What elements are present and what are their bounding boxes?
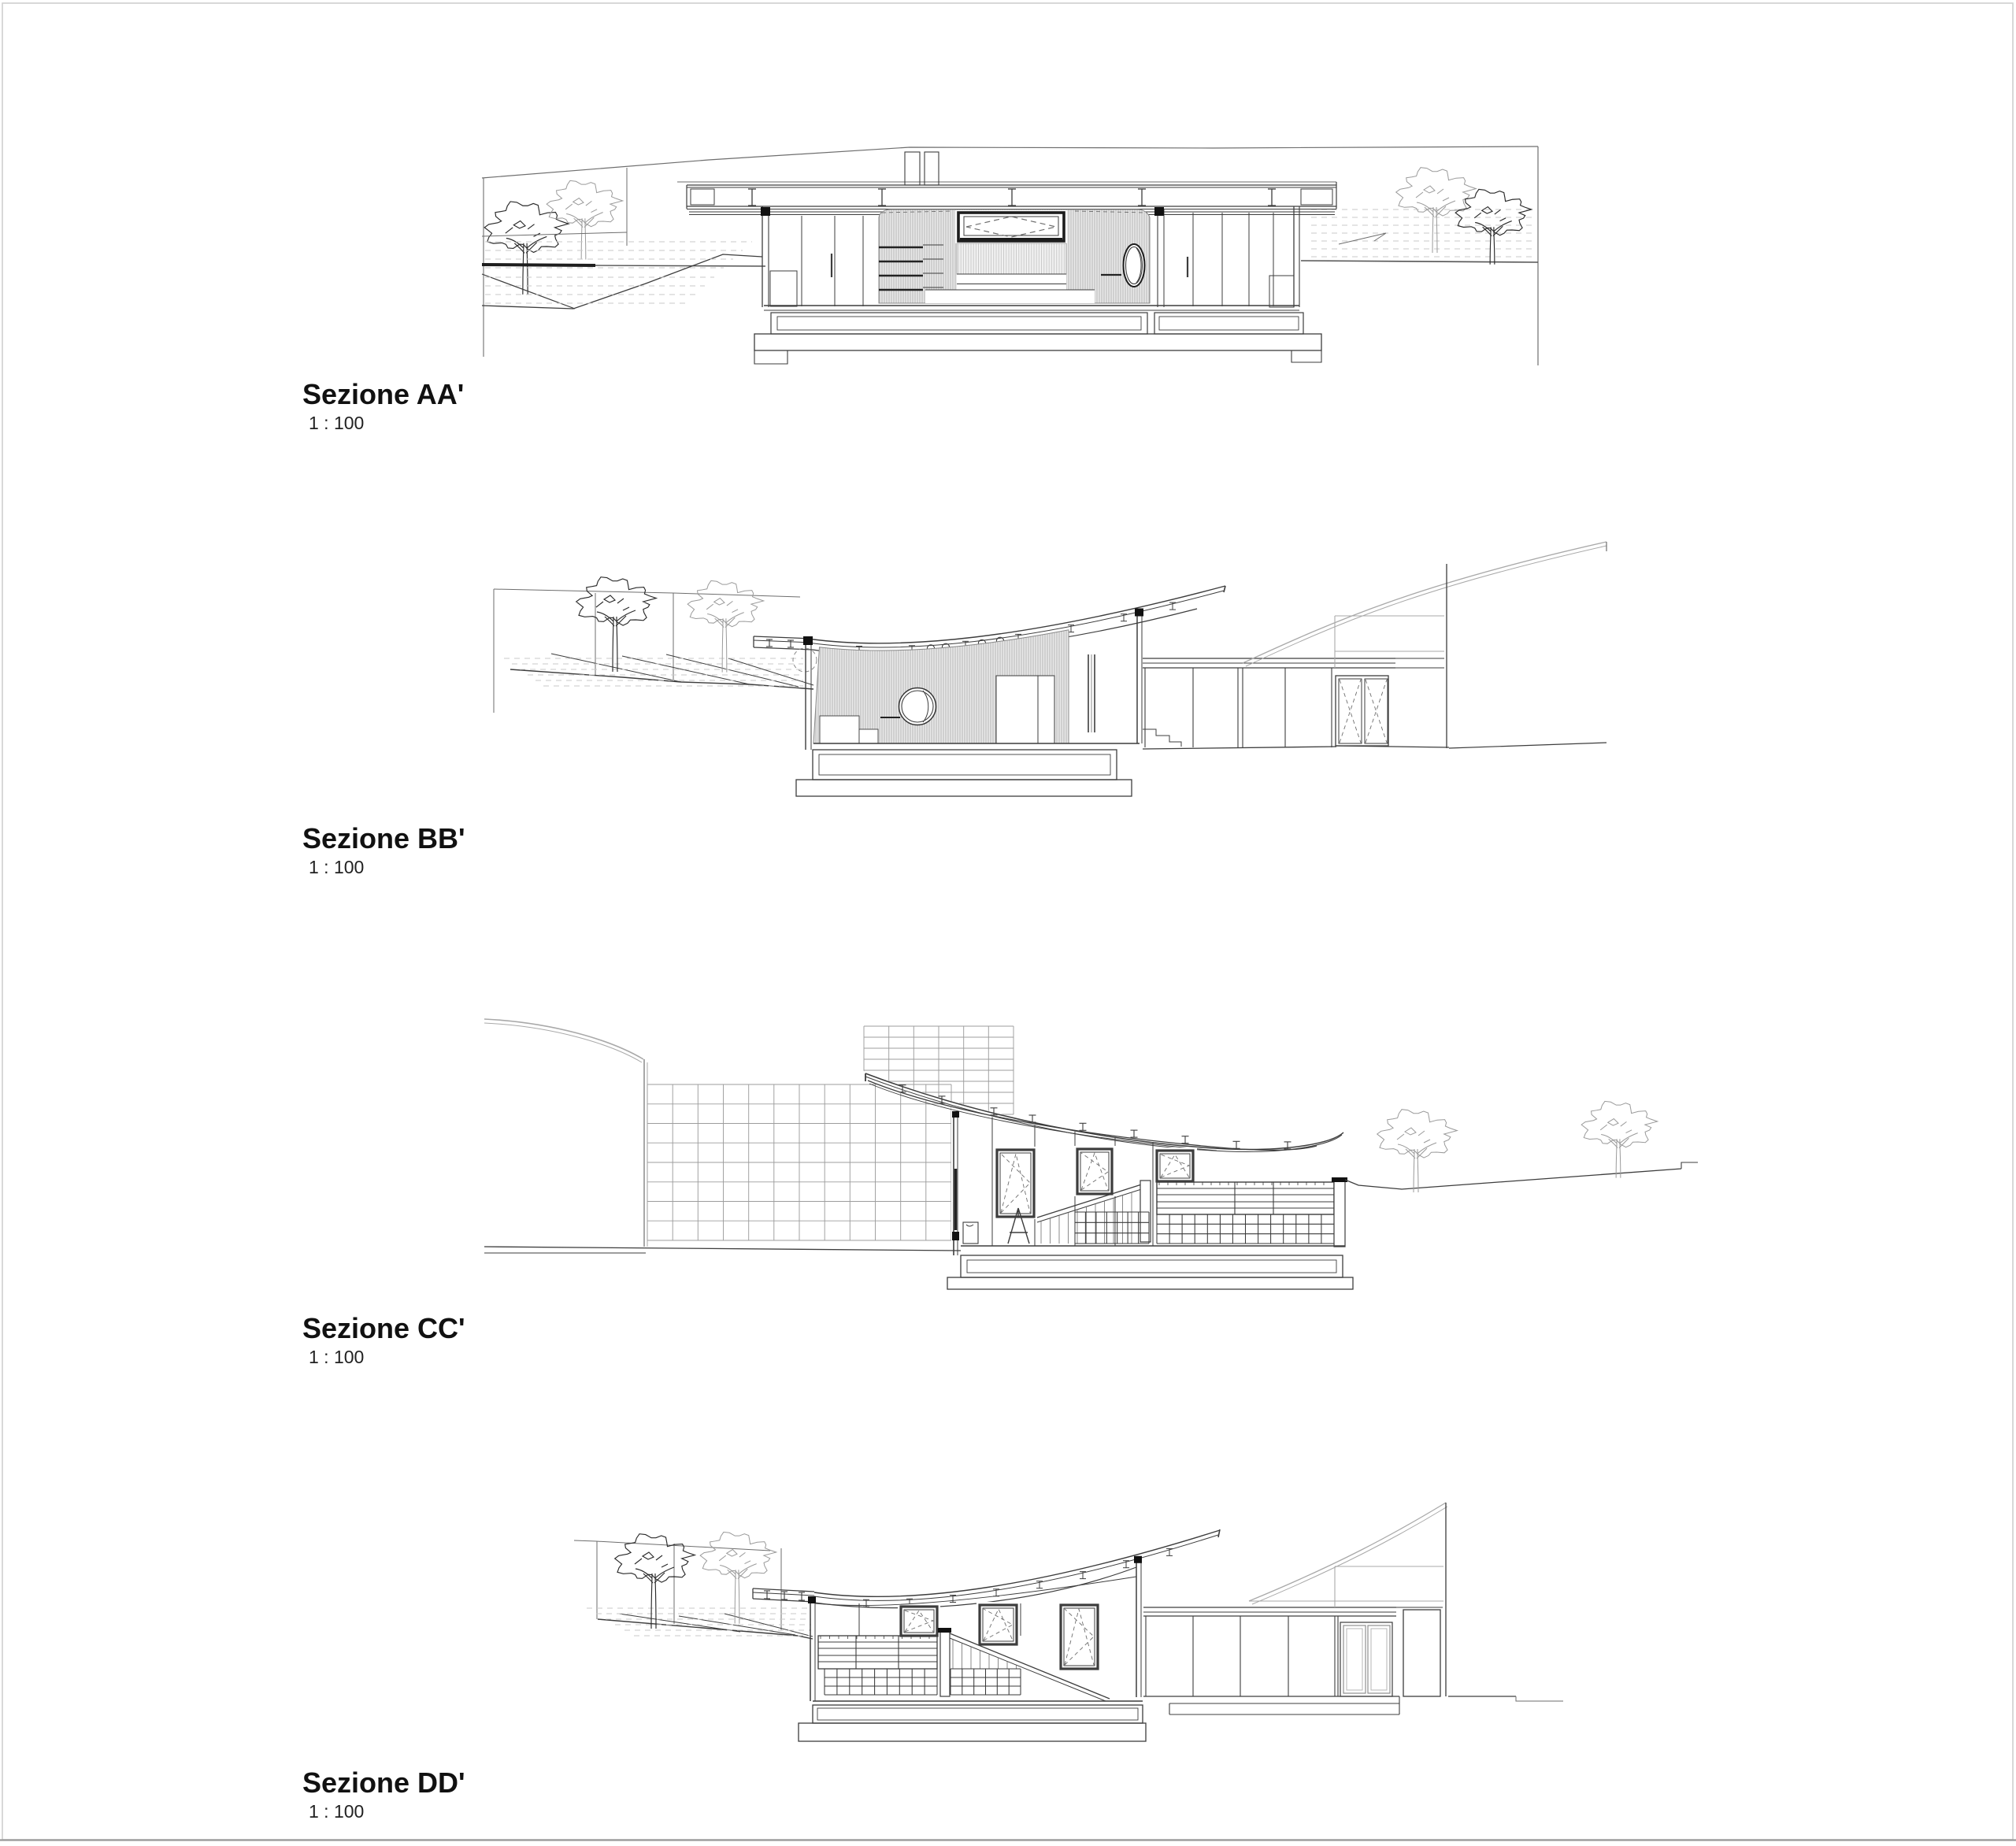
svg-text:Sezione DD': Sezione DD' — [302, 1766, 465, 1799]
svg-text:1 : 100: 1 : 100 — [309, 1347, 364, 1367]
svg-text:1 : 100: 1 : 100 — [309, 1801, 364, 1822]
svg-text:1 : 100: 1 : 100 — [309, 413, 364, 433]
svg-text:Sezione BB': Sezione BB' — [302, 822, 465, 854]
svg-text:1 : 100: 1 : 100 — [309, 857, 364, 877]
svg-text:Sezione AA': Sezione AA' — [302, 378, 464, 410]
svg-text:Sezione CC': Sezione CC' — [302, 1312, 465, 1344]
